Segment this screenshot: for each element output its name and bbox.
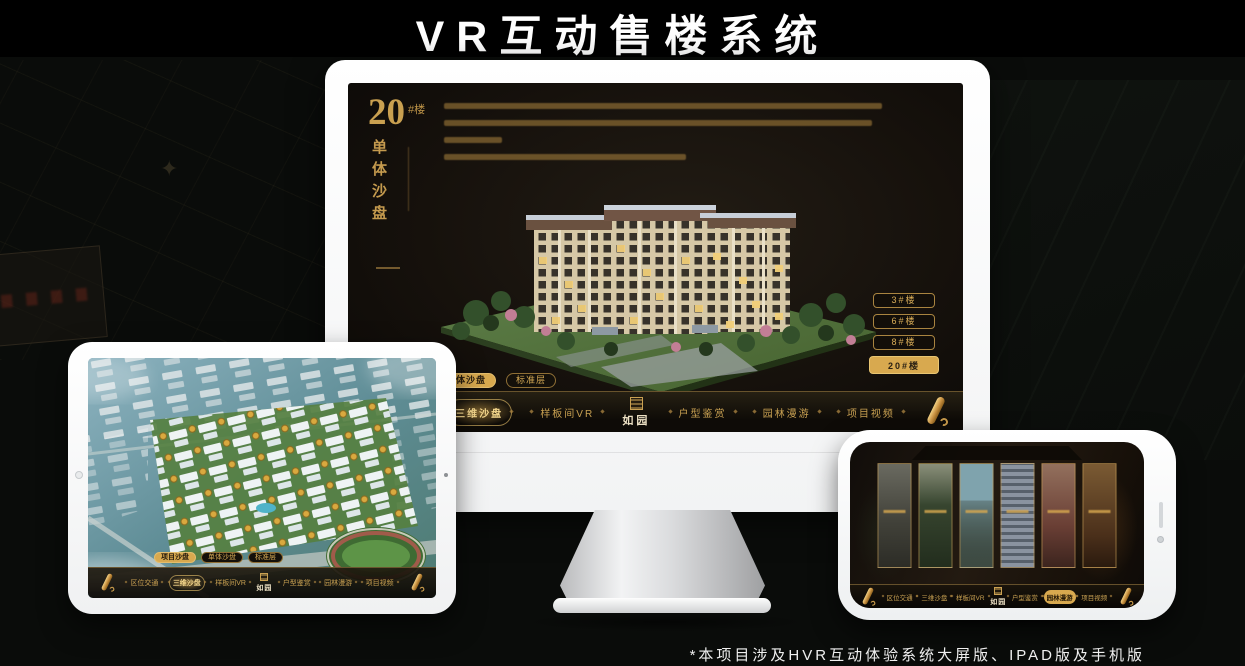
brand-logo-text: 如园 (622, 412, 650, 428)
promo-canvas: ✦ VR互动售楼系统 20 #楼 单体沙盘 (0, 0, 1245, 666)
gallery-panels (878, 463, 1117, 568)
block-subtitle-vertical: 单体沙盘 (368, 139, 389, 243)
tablet-navbar: 区位交通 三维沙盘 样板间VR 如园 户型鉴赏 园林漫游 项目视频 (88, 567, 436, 598)
faint-map-roads (0, 60, 340, 360)
tablet-camera-icon (75, 471, 83, 479)
phone-nav-location[interactable]: 区位交通 (884, 590, 916, 604)
phone-scroll-left-icon[interactable] (860, 587, 876, 606)
phone-device: 区位交通 三维沙盘 样板间VR 如园 户型鉴赏 园林漫游 项目视频 (838, 430, 1176, 620)
monitor-shadow (520, 612, 810, 632)
phone-camera-icon (1157, 536, 1164, 543)
tablet-nav-unit-plans[interactable]: 户型鉴赏 (280, 576, 314, 590)
panel-card-interior[interactable] (1083, 463, 1117, 568)
faint-compass-star: ✦ (160, 156, 178, 182)
floor-button-20[interactable]: 20#楼 (869, 356, 939, 374)
phone-brand-logo-text: 如园 (990, 597, 1006, 607)
phone-speaker-icon (1159, 502, 1163, 528)
tablet-tab-single-sandbox[interactable]: 单体沙盘 (201, 552, 243, 563)
scroll-menu-icon[interactable] (923, 397, 949, 427)
floor-button-8[interactable]: 8#楼 (873, 335, 935, 350)
tab-standard-floor[interactable]: 标准层 (506, 373, 556, 388)
tablet-nav-garden-roam[interactable]: 园林漫游 (321, 576, 355, 590)
nav-item-unit-plans[interactable]: 户型鉴赏 (671, 400, 735, 425)
monitor-stand-base (553, 598, 771, 613)
tablet-nav-3d-sandbox[interactable]: 三维沙盘 (169, 575, 205, 591)
tablet-scroll-right-icon[interactable] (409, 574, 425, 593)
panel-card-skyline[interactable] (960, 463, 994, 568)
tablet-nav-showroom-vr[interactable]: 样板间VR (212, 576, 249, 590)
building-render (406, 135, 906, 405)
nav-item-project-video[interactable]: 项目视频 (839, 400, 903, 425)
footnote: *本项目涉及HVR互动体验系统大屏版、IPAD版及手机版 (690, 644, 1145, 665)
phone-nav-3d-sandbox[interactable]: 三维沙盘 (918, 590, 950, 604)
phone-scroll-right-icon[interactable] (1118, 587, 1134, 606)
brand-seal-icon (630, 397, 643, 410)
tablet-brand-logo: 如园 (256, 573, 272, 593)
nav-item-3d-sandbox[interactable]: 三维沙盘 (446, 399, 512, 426)
faint-plaque (0, 245, 108, 346)
block-title-rule (376, 267, 400, 269)
tablet-brand-logo-text: 如园 (256, 583, 272, 593)
floor-button-6[interactable]: 6#楼 (873, 314, 935, 329)
phone-screen: 区位交通 三维沙盘 样板间VR 如园 户型鉴赏 园林漫游 项目视频 (850, 442, 1144, 608)
tablet-sandbox-subtabs: 项目沙盘 单体沙盘 标准层 (154, 552, 283, 563)
tablet-tab-project-sandbox[interactable]: 项目沙盘 (154, 552, 196, 563)
brand-logo: 如园 (622, 397, 650, 428)
pavilion-roof-silhouette (912, 446, 1082, 460)
panel-card-gate[interactable] (1042, 463, 1076, 568)
block-number: 20 (368, 95, 405, 131)
tablet-tab-standard-floor[interactable]: 标准层 (248, 552, 283, 563)
tablet-brand-seal-icon (260, 573, 268, 581)
phone-nav-garden-roam[interactable]: 园林漫游 (1044, 590, 1076, 604)
tablet-nav-project-video[interactable]: 项目视频 (363, 576, 397, 590)
tablet-nav-location[interactable]: 区位交通 (127, 576, 161, 590)
nav-item-garden-roam[interactable]: 园林漫游 (755, 400, 819, 425)
floor-button-3[interactable]: 3#楼 (873, 293, 935, 308)
phone-nav-project-video[interactable]: 项目视频 (1078, 590, 1110, 604)
tablet-screen: 项目沙盘 单体沙盘 标准层 区位交通 三维沙盘 样板间VR 如园 户型鉴赏 园林… (88, 358, 436, 598)
phone-brand-seal-icon (994, 587, 1002, 595)
panel-card-garden[interactable] (919, 463, 953, 568)
panel-card-building[interactable] (1001, 463, 1035, 568)
floor-button-column: 3#楼 6#楼 8#楼 20#楼 (869, 293, 939, 374)
phone-brand-logo: 如园 (990, 587, 1006, 607)
phone-nav-showroom-vr[interactable]: 样板间VR (953, 590, 988, 604)
tablet-scroll-left-icon[interactable] (99, 574, 115, 593)
faint-photo-collage (975, 80, 1245, 460)
phone-navbar: 区位交通 三维沙盘 样板间VR 如园 户型鉴赏 园林漫游 项目视频 (850, 584, 1144, 608)
phone-nav-unit-plans[interactable]: 户型鉴赏 (1009, 590, 1041, 604)
monitor-stand-neck (560, 510, 765, 602)
page-title: VR互动售楼系统 (0, 2, 1245, 64)
nav-item-showroom-vr[interactable]: 样板间VR (532, 400, 602, 425)
tablet-button-dot (444, 473, 448, 477)
tablet-device: 项目沙盘 单体沙盘 标准层 区位交通 三维沙盘 样板间VR 如园 户型鉴赏 园林… (68, 342, 456, 614)
panel-card-courtyard[interactable] (878, 463, 912, 568)
block-number-suffix: #楼 (408, 101, 425, 117)
